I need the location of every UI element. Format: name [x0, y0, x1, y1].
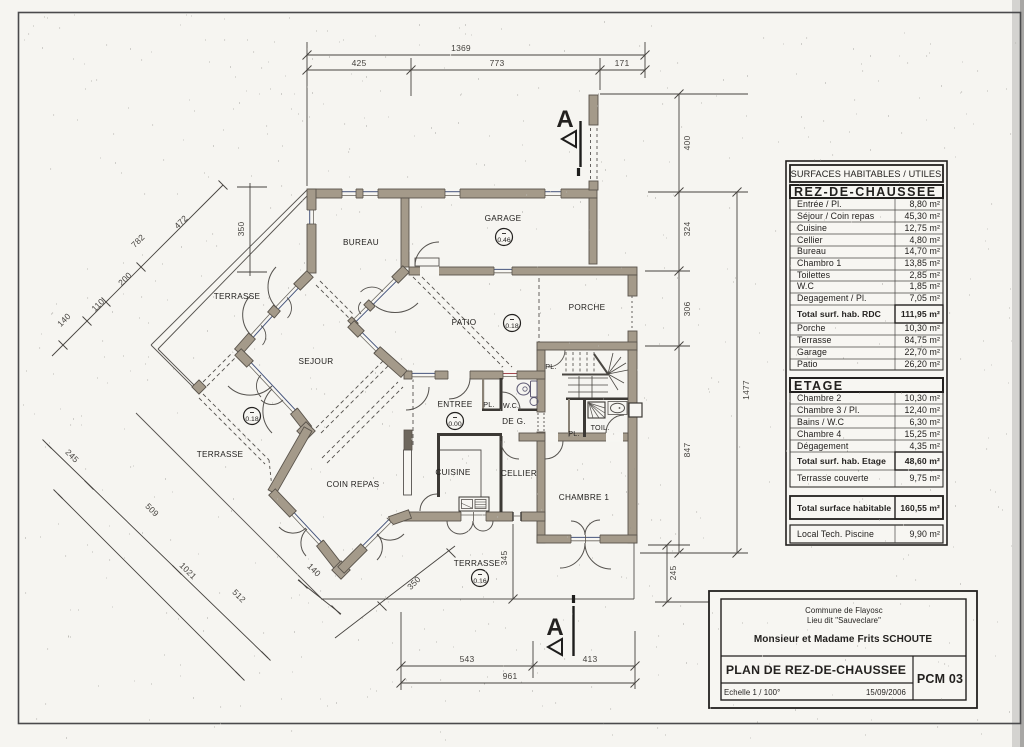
svg-text:1477: 1477 — [741, 380, 751, 400]
svg-text:PL.: PL. — [483, 400, 494, 409]
svg-text:GARAGE: GARAGE — [485, 214, 522, 223]
svg-text:SURFACES HABITABLES / UTILES: SURFACES HABITABLES / UTILES — [791, 169, 942, 179]
svg-text:22,70 m²: 22,70 m² — [904, 347, 940, 357]
svg-text:Cuisine: Cuisine — [797, 223, 827, 233]
svg-text:773: 773 — [490, 58, 505, 68]
svg-text:Bureau: Bureau — [797, 246, 826, 256]
svg-text:1,85 m²: 1,85 m² — [909, 281, 940, 291]
svg-text:PORCHE: PORCHE — [569, 303, 606, 312]
svg-text:TERRASSE: TERRASSE — [454, 559, 501, 568]
svg-text:0.18: 0.18 — [245, 416, 258, 423]
svg-text:0.46: 0.46 — [497, 237, 510, 244]
svg-text:4,80 m²: 4,80 m² — [909, 235, 940, 245]
svg-text:8,80 m²: 8,80 m² — [909, 199, 940, 209]
svg-text:48,60 m²: 48,60 m² — [905, 456, 940, 466]
svg-text:CHAMBRE 1: CHAMBRE 1 — [559, 493, 610, 502]
svg-text:160,55 m²: 160,55 m² — [900, 503, 940, 513]
svg-text:Bains / W.C: Bains / W.C — [797, 417, 845, 427]
svg-text:DE G.: DE G. — [502, 417, 526, 426]
svg-text:Commune de Flayosc: Commune de Flayosc — [805, 606, 883, 615]
svg-text:0.18: 0.18 — [505, 323, 518, 330]
svg-text:TERRASSE: TERRASSE — [197, 450, 244, 459]
svg-text:400: 400 — [682, 136, 692, 151]
svg-text:ETAGE: ETAGE — [794, 379, 844, 393]
svg-text:15/09/2006: 15/09/2006 — [866, 688, 906, 697]
svg-text:345: 345 — [499, 551, 509, 566]
svg-text:Porche: Porche — [797, 323, 825, 333]
svg-text:Entrée / Pl.: Entrée / Pl. — [797, 199, 842, 209]
svg-text:Echelle 1 / 100°: Echelle 1 / 100° — [724, 688, 780, 697]
svg-text:111,95 m²: 111,95 m² — [901, 309, 940, 319]
svg-text:413: 413 — [583, 654, 598, 664]
svg-text:BUREAU: BUREAU — [343, 238, 379, 247]
svg-text:Garage: Garage — [797, 347, 827, 357]
svg-text:Dégagement: Dégagement — [797, 441, 849, 451]
svg-text:Total surface habitable: Total surface habitable — [797, 503, 891, 513]
svg-text:10,30 m²: 10,30 m² — [904, 393, 940, 403]
svg-text:45,30 m²: 45,30 m² — [904, 211, 940, 221]
svg-text:W.C.: W.C. — [503, 401, 519, 410]
svg-text:9,90 m²: 9,90 m² — [909, 529, 940, 539]
svg-text:Total surf. hab. RDC: Total surf. hab. RDC — [797, 309, 881, 319]
svg-text:SEJOUR: SEJOUR — [298, 357, 333, 366]
svg-text:Local Tech. Piscine: Local Tech. Piscine — [797, 529, 874, 539]
svg-text:15,25 m²: 15,25 m² — [904, 429, 940, 439]
svg-text:Toilettes: Toilettes — [797, 270, 831, 280]
svg-text:A: A — [546, 614, 563, 641]
svg-text:CELLIER: CELLIER — [501, 469, 537, 478]
svg-text:4,35 m²: 4,35 m² — [909, 441, 940, 451]
svg-text:26,20 m²: 26,20 m² — [904, 359, 940, 369]
svg-text:Chambre 2: Chambre 2 — [797, 393, 841, 403]
svg-text:Chambro 1: Chambro 1 — [797, 258, 841, 268]
svg-text:Séjour / Coin repas: Séjour / Coin repas — [797, 211, 875, 221]
svg-text:12,40 m²: 12,40 m² — [904, 405, 940, 415]
svg-text:COIN REPAS: COIN REPAS — [327, 480, 380, 489]
svg-text:Chambre 3 / Pl.: Chambre 3 / Pl. — [797, 405, 860, 415]
svg-text:PL.: PL. — [568, 429, 579, 438]
svg-text:PLAN DE REZ-DE-CHAUSSEE: PLAN DE REZ-DE-CHAUSSEE — [726, 663, 906, 677]
svg-text:W.C: W.C — [797, 281, 814, 291]
svg-text:Patio: Patio — [797, 359, 818, 369]
svg-text:Terrasse couverte: Terrasse couverte — [797, 473, 869, 483]
svg-text:84,75 m²: 84,75 m² — [904, 335, 940, 345]
svg-text:TOIL.: TOIL. — [591, 423, 610, 432]
svg-text:1369: 1369 — [451, 43, 471, 53]
svg-text:543: 543 — [460, 654, 475, 664]
svg-text:2,85 m²: 2,85 m² — [909, 270, 940, 280]
svg-text:0.16: 0.16 — [473, 578, 486, 585]
svg-text:0.00: 0.00 — [448, 421, 461, 428]
svg-text:Chambre 4: Chambre 4 — [797, 429, 841, 439]
svg-text:Lieu dit "Sauveclare": Lieu dit "Sauveclare" — [807, 616, 881, 625]
svg-text:Cellier: Cellier — [797, 235, 823, 245]
svg-text:425: 425 — [352, 58, 367, 68]
svg-text:7,05 m²: 7,05 m² — [909, 293, 940, 303]
svg-text:Monsieur et Madame Frits SCHOU: Monsieur et Madame Frits SCHOUTE — [754, 634, 932, 645]
svg-text:171: 171 — [615, 58, 630, 68]
svg-text:Degagement / Pl.: Degagement / Pl. — [797, 293, 867, 303]
svg-text:13,85 m²: 13,85 m² — [904, 258, 940, 268]
svg-text:PL.: PL. — [545, 362, 556, 371]
svg-text:REZ-DE-CHAUSSEE: REZ-DE-CHAUSSEE — [794, 185, 937, 199]
svg-text:A: A — [556, 106, 573, 133]
svg-text:245: 245 — [668, 566, 678, 581]
svg-text:12,75 m²: 12,75 m² — [904, 223, 940, 233]
svg-text:TERRASSE: TERRASSE — [214, 292, 261, 301]
svg-text:9,75 m²: 9,75 m² — [909, 473, 940, 483]
svg-text:324: 324 — [682, 222, 692, 237]
svg-text:ENTREE: ENTREE — [437, 400, 472, 409]
svg-text:306: 306 — [682, 302, 692, 317]
svg-text:PCM 03: PCM 03 — [917, 672, 963, 686]
svg-text:Terrasse: Terrasse — [797, 335, 832, 345]
svg-text:350: 350 — [236, 222, 246, 237]
svg-text:847: 847 — [682, 443, 692, 458]
svg-text:10,30 m²: 10,30 m² — [904, 323, 940, 333]
svg-text:PATIO: PATIO — [452, 318, 477, 327]
svg-text:14,70 m²: 14,70 m² — [904, 246, 940, 256]
svg-text:Total surf. hab. Etage: Total surf. hab. Etage — [797, 456, 886, 466]
svg-text:6,30 m²: 6,30 m² — [909, 417, 940, 427]
